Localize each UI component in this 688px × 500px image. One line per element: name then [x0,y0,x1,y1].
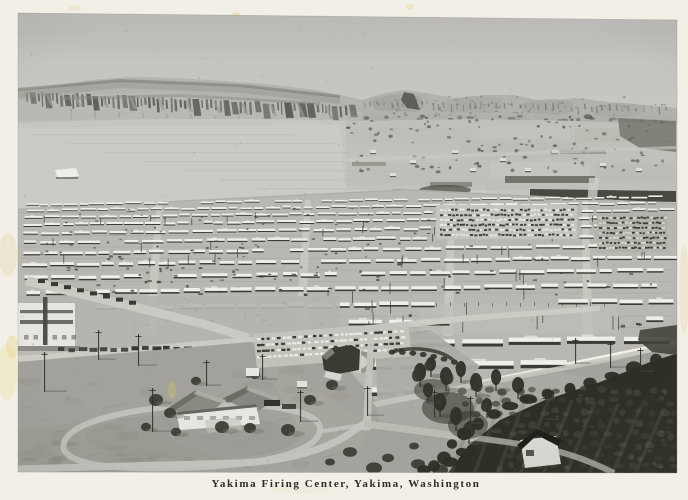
svg-text:Yakima Firing Center, Yakima,: Yakima Firing Center, Yakima, Washington [212,478,481,490]
